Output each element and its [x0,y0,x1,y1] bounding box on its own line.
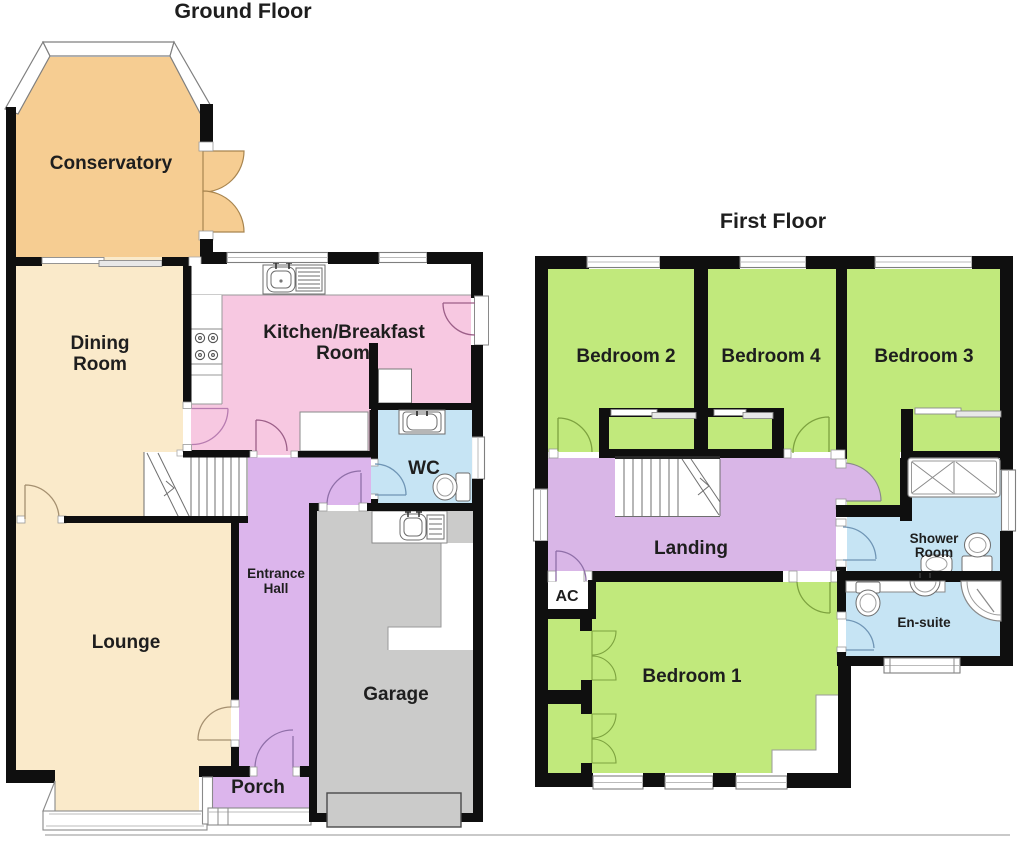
svg-text:Bedroom 3: Bedroom 3 [874,346,973,367]
svg-text:Entrance: Entrance [247,566,305,581]
svg-text:Room: Room [316,343,370,364]
svg-text:Ground Floor: Ground Floor [174,0,312,23]
svg-text:Dining: Dining [70,333,129,354]
svg-text:Hall: Hall [264,581,289,596]
svg-text:Bedroom 4: Bedroom 4 [721,346,821,367]
svg-text:Porch: Porch [231,777,285,798]
svg-text:Bedroom 2: Bedroom 2 [576,346,675,367]
svg-text:Garage: Garage [363,684,428,705]
svg-text:Conservatory: Conservatory [50,153,173,174]
svg-text:Room: Room [73,354,127,375]
svg-text:Shower: Shower [910,531,960,546]
svg-text:WC: WC [408,458,440,479]
svg-text:Kitchen/Breakfast: Kitchen/Breakfast [263,322,425,343]
svg-text:Room: Room [915,545,953,560]
svg-text:Bedroom 1: Bedroom 1 [642,666,742,687]
svg-text:First Floor: First Floor [720,209,827,233]
svg-text:AC: AC [555,588,579,605]
svg-text:En-suite: En-suite [897,615,951,630]
svg-text:Landing: Landing [654,538,728,559]
svg-text:Lounge: Lounge [92,632,161,653]
